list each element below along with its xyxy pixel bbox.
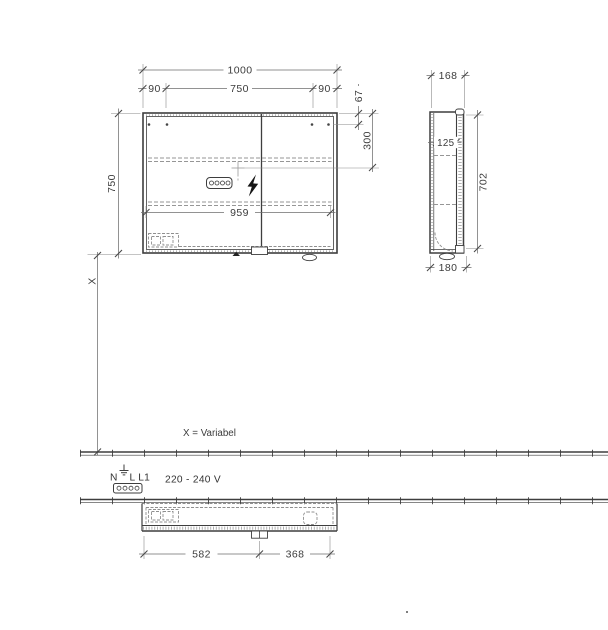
front-view: [143, 113, 337, 261]
dim-left-offset-label: 90: [148, 83, 160, 95]
dim-top-to-connection-label: 300: [362, 131, 374, 150]
light-fixture-front: [303, 254, 317, 260]
x-variable-note: X = Variabel: [183, 428, 236, 439]
bottom-dimensions: 582 368: [139, 536, 335, 561]
dim-depth-top-label: 168: [439, 70, 458, 82]
dim-total-width-label: 1000: [228, 65, 253, 77]
dim-inner-width-label: 959: [230, 207, 249, 219]
wall-line-upper: [80, 452, 608, 455]
terminal-n-label: N: [110, 473, 118, 484]
electrical-connection: N L L1 220 - 240 V: [110, 465, 221, 494]
dim-right-offset-label: 90: [318, 83, 330, 95]
light-fixture-side: [440, 253, 455, 259]
earth-ground-icon: [120, 465, 129, 475]
dim-left-section-label: 582: [192, 549, 211, 561]
electrical-box-bottom: [149, 510, 179, 523]
light-cutout-bottom: [304, 512, 318, 525]
power-connector-icon: [114, 484, 143, 494]
handle-tab-bottom: [252, 531, 268, 538]
dim-subdivision: 90 750 90: [138, 82, 342, 95]
mirror-door-edge-bottom: [142, 526, 337, 532]
dim-depth-bottom-label: 180: [439, 262, 458, 274]
dim-right-section-label: 368: [286, 549, 305, 561]
dim-depth-top: 168: [427, 69, 470, 82]
dim-center-span-label: 750: [230, 83, 249, 95]
dim-top-to-connection: 300: [362, 109, 376, 172]
door-top-cap: [456, 109, 465, 115]
dim-height-side-label: 702: [478, 173, 490, 192]
dim-inner-depth-label: 125: [437, 138, 454, 149]
door-bottom-block: [456, 246, 465, 254]
dim-height-side: 702: [474, 110, 490, 254]
print-artifact-dot: [406, 611, 408, 613]
bottom-view-inner-hidden-rect: [146, 508, 333, 525]
technical-drawing-page: 1000 90 750 90 67: [0, 0, 608, 630]
dim-depth-bottom: 180: [426, 261, 472, 274]
terminal-l-labels: L L1: [130, 473, 151, 484]
bottom-view: [142, 504, 337, 539]
voltage-label: 220 - 240 V: [165, 475, 221, 486]
x-dimension: X X = Variabel: [87, 252, 236, 456]
drawing-svg: 1000 90 750 90 67: [0, 0, 608, 630]
cabinet-body-front: [143, 113, 337, 253]
dim-height-front-label: 750: [106, 174, 118, 193]
dim-total-width: 1000: [138, 64, 342, 77]
wall-line-lower: [80, 500, 608, 503]
bottom-center-tab: [252, 247, 268, 255]
x-dimension-label: X: [87, 277, 99, 284]
dim-height-front: 750: [106, 109, 122, 259]
dim-top-to-holes: 67: [352, 84, 365, 130]
power-socket-icon: [207, 178, 233, 189]
dim-top-to-holes-label: 67: [353, 90, 365, 102]
side-view: [430, 109, 464, 260]
